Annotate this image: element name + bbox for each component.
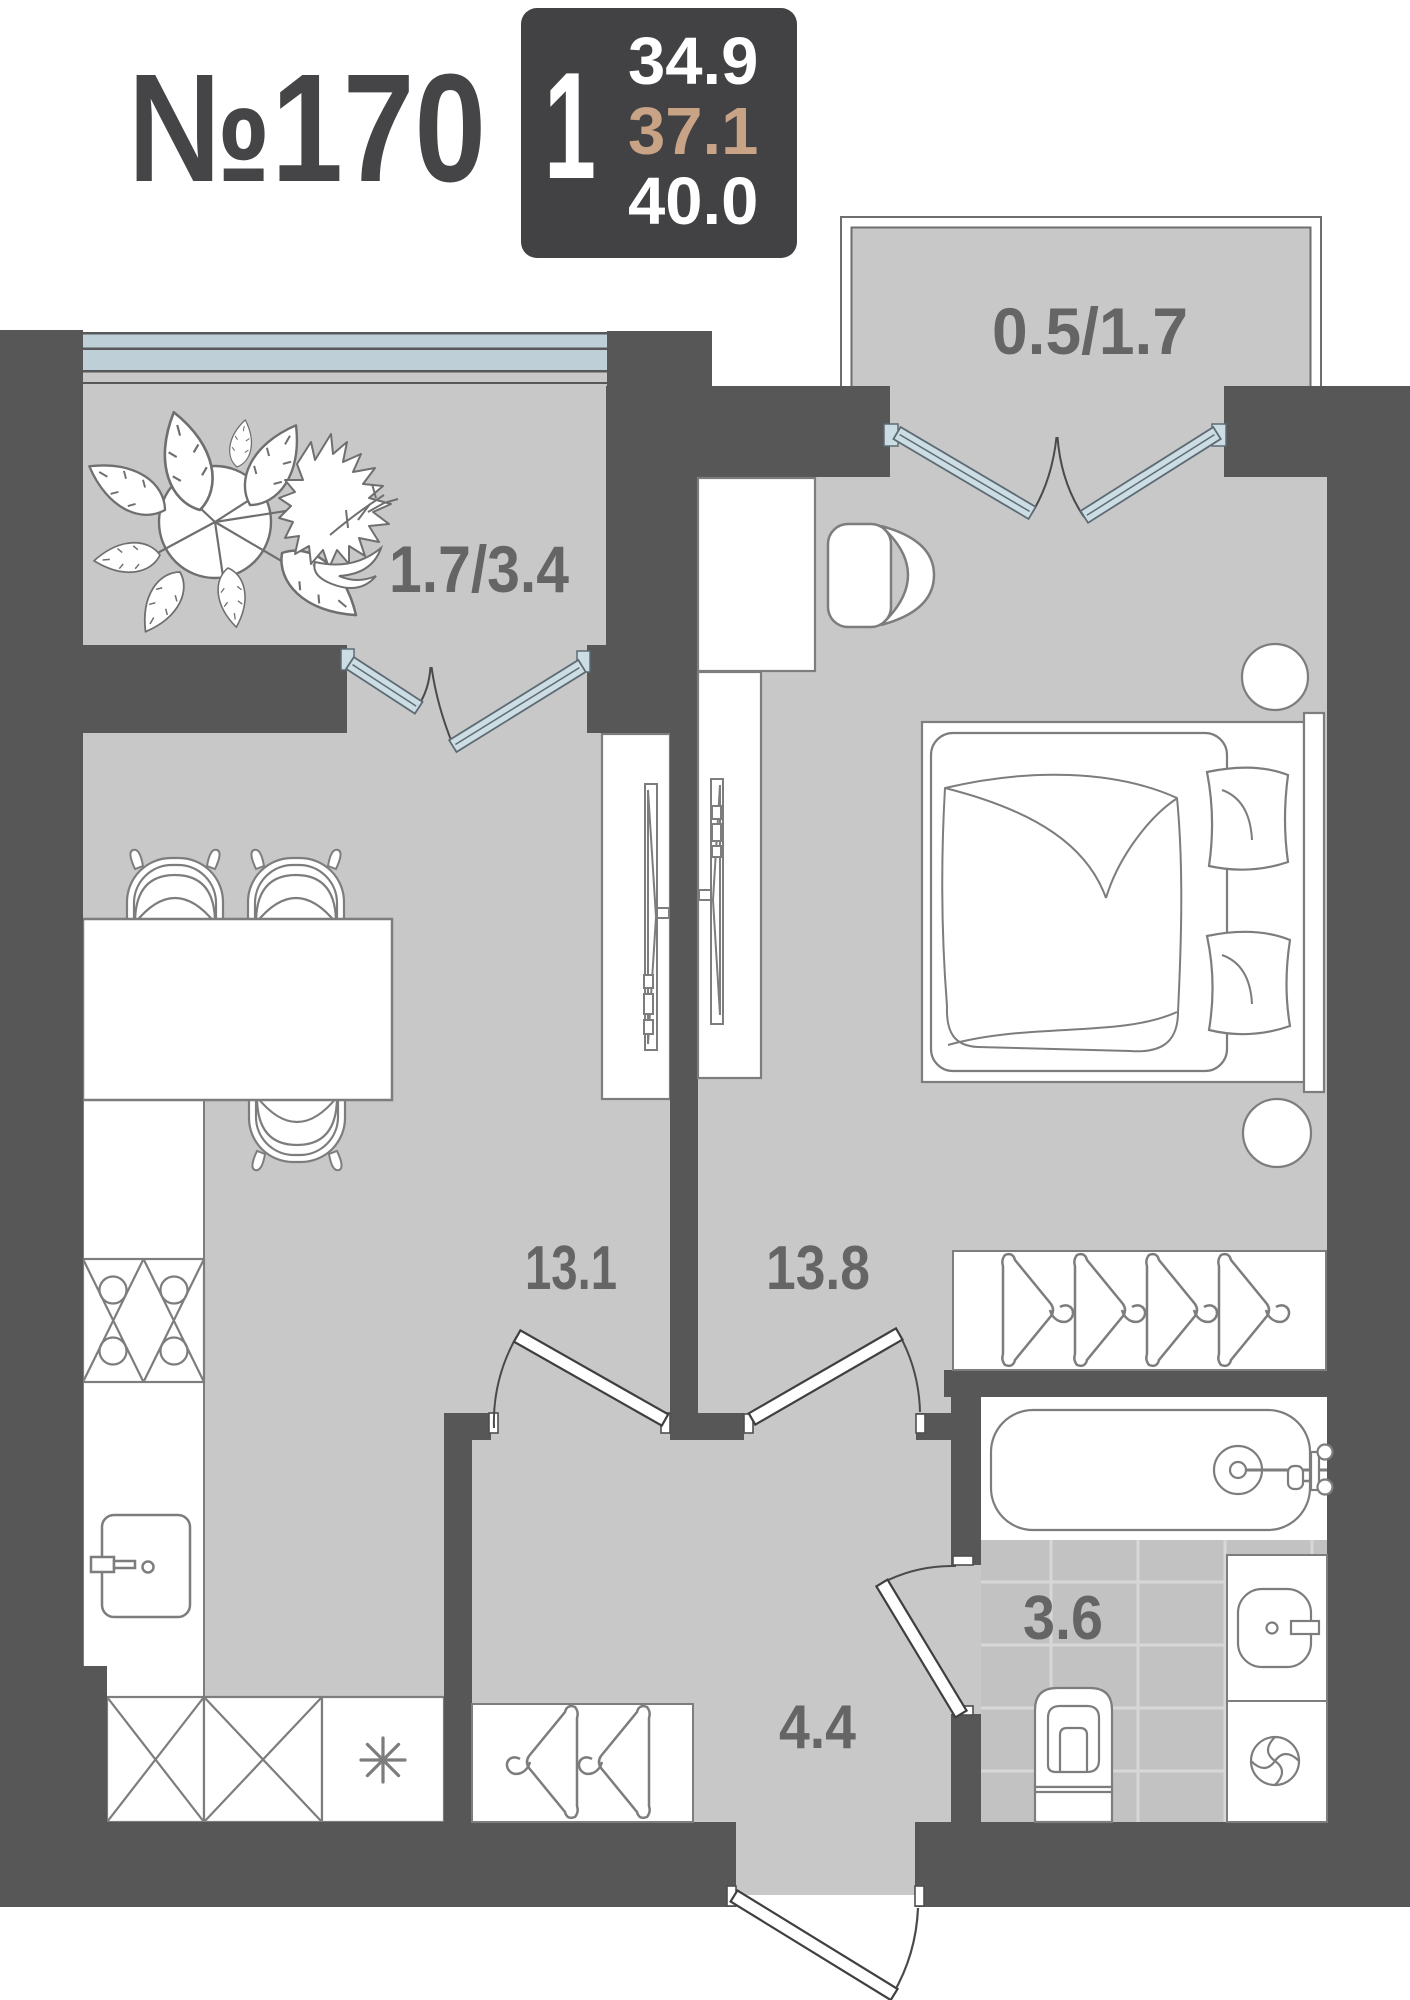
svg-text:4.4: 4.4 <box>779 1693 856 1762</box>
svg-text:3.6: 3.6 <box>1023 1584 1103 1653</box>
svg-text:0.5/1.7: 0.5/1.7 <box>992 294 1188 368</box>
svg-text:13.1: 13.1 <box>525 1234 617 1303</box>
svg-text:40.0: 40.0 <box>628 164 758 239</box>
svg-text:1: 1 <box>544 41 596 211</box>
svg-text:13.8: 13.8 <box>766 1234 870 1303</box>
svg-text:1.7/3.4: 1.7/3.4 <box>389 532 569 606</box>
svg-text:34.9: 34.9 <box>628 24 758 99</box>
svg-text:№170: №170 <box>128 42 486 214</box>
svg-text:37.1: 37.1 <box>628 94 758 169</box>
